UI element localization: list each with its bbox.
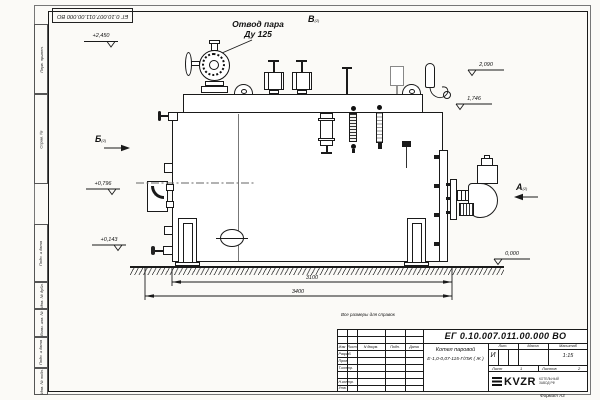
sheets-label: Листов xyxy=(542,366,557,371)
safety-valve-2 xyxy=(292,72,312,90)
steam-valve-ring xyxy=(199,50,230,81)
col-izm: Изм xyxy=(337,345,347,349)
frame-cell-label: Подп. и дата xyxy=(39,240,44,265)
frame-cell-label: Взам. инв. № xyxy=(39,311,44,336)
frame-cell-label: Справ. № xyxy=(39,130,44,148)
view-sheet-ref: (2) xyxy=(315,18,320,23)
tb-h xyxy=(488,349,588,350)
row-nkontr: Н.контр. xyxy=(339,380,354,384)
elbow-flange-top xyxy=(166,184,174,191)
row-razrab: Разраб. xyxy=(339,352,352,356)
tb-v xyxy=(488,343,489,392)
doc-number: ЕГ 0.10.007.011.00.000 ВО xyxy=(423,331,588,341)
frame-cell-label: Инв. № дубл. xyxy=(39,283,44,308)
frame-cell-podp-data-2: Подп. и дата xyxy=(34,337,48,368)
sv-inner-wall xyxy=(296,73,310,89)
mass-header: Масса xyxy=(518,344,548,348)
row-utv: Утв. xyxy=(339,386,347,390)
lug-hole xyxy=(409,89,415,94)
lit-header: Лит. xyxy=(488,344,518,348)
logo-bars-icon xyxy=(492,377,502,387)
sv2-stem xyxy=(301,61,303,72)
frame-cell-perv-primen: Перв. примен. xyxy=(34,24,48,94)
burner-motor-cap xyxy=(481,158,493,166)
steam-drum xyxy=(183,94,423,113)
feed-column-flange-bot xyxy=(318,138,335,141)
lug-hole xyxy=(241,89,247,94)
sample-pipe-end xyxy=(443,91,451,99)
reference-note: Все размеры для справок xyxy=(341,312,395,317)
manhole-axis xyxy=(216,238,248,239)
burner-motor-top xyxy=(484,155,490,159)
elbow-flange-bottom xyxy=(166,201,174,208)
steam-outlet-label-line1: Отвод пара xyxy=(222,19,294,29)
logo-tagline-2: ЗАВОД РФ xyxy=(539,382,559,386)
elevation-value: 0,000 xyxy=(494,251,530,257)
company-logo: KVZR КОТЕЛЬНЫЙ ЗАВОД РФ xyxy=(492,373,586,390)
format-label: Формат А3 xyxy=(540,393,565,398)
tb-h xyxy=(337,371,423,372)
elevation-value: +0,143 xyxy=(92,237,126,243)
top-stamp-doc-number: ЕГ 0.10.007.011.00.000 ВО xyxy=(57,13,128,19)
wall-stub-lower xyxy=(164,226,173,235)
steam-outlet-label-line2: Ду 125 xyxy=(222,29,294,39)
vent-cap xyxy=(342,67,352,69)
gauge2-knob-top xyxy=(377,105,382,110)
valve-stem xyxy=(191,61,200,66)
tb-v xyxy=(538,365,539,371)
scale-header: Масштаб xyxy=(548,344,588,348)
tb-h xyxy=(337,357,423,358)
lit-value: И xyxy=(488,352,498,359)
leg-channel xyxy=(183,223,193,262)
elevation-value: 2,090 xyxy=(468,62,504,68)
view-sheet-ref: (2) xyxy=(523,186,528,191)
sheets-value: 2 xyxy=(578,366,580,371)
row-prov: Пров. xyxy=(339,359,348,363)
view-v-label: В(2) xyxy=(308,14,319,24)
sv2-neck xyxy=(297,90,307,95)
tb-v xyxy=(498,349,499,365)
tb-h xyxy=(337,336,423,337)
wall-stub-upper xyxy=(164,163,173,173)
sv2-crossbar xyxy=(296,60,307,62)
leg-base-left xyxy=(175,262,200,266)
frame-cell-label: Перв. примен. xyxy=(39,46,44,73)
valve-center xyxy=(209,60,219,70)
product-designation: Е-1,0-0,07-115-Г/ЛЖ ( Ж ) xyxy=(423,357,488,362)
drain-valve-body xyxy=(163,246,173,255)
leg-channel xyxy=(412,223,422,262)
drain-valve-wheel xyxy=(151,246,155,255)
burner-stud xyxy=(446,183,451,186)
boiler-body xyxy=(172,112,443,262)
sv1-neck xyxy=(269,90,279,95)
safety-valve-1 xyxy=(264,72,284,90)
elevation-value: +2,450 xyxy=(84,33,118,39)
instrument-outline xyxy=(390,66,404,86)
frame-cell-label: Инв. № подл. xyxy=(39,369,44,394)
tb-v xyxy=(357,329,358,392)
feed-column-flange-top xyxy=(318,118,335,121)
gauge2-foot xyxy=(378,143,382,149)
drain-valve-stem xyxy=(155,250,163,252)
tb-h xyxy=(488,371,588,372)
tb-v xyxy=(385,329,386,392)
burner-stud xyxy=(446,211,451,214)
burner-fin-box xyxy=(459,203,474,216)
gauge-elbow-box xyxy=(147,181,168,212)
flange-stud xyxy=(434,242,440,246)
steam-nozzle-disc xyxy=(205,81,224,86)
vent-stem xyxy=(346,69,348,94)
frame-cell-sprav-no: Справ. № xyxy=(34,94,48,184)
support-leg-left xyxy=(178,218,197,265)
feedwater-valve-body xyxy=(168,112,178,121)
col-ndoc: N докум. xyxy=(357,345,385,349)
flange-stud xyxy=(434,184,440,188)
product-name: Котел паровой xyxy=(423,347,488,353)
valve-bonnet xyxy=(211,43,218,51)
row-tkontr: Т.контр. xyxy=(339,366,354,370)
dimension-overall: 3400 xyxy=(268,289,328,295)
level-gauge-2 xyxy=(376,112,383,143)
burner-motor xyxy=(477,165,498,184)
flange-stud xyxy=(434,213,440,217)
tb-v xyxy=(405,329,406,392)
steam-nozzle-flange xyxy=(201,86,228,93)
tb-h xyxy=(337,385,423,386)
col-podp: Подп. xyxy=(385,345,405,349)
dimension-inner: 3100 xyxy=(282,275,342,281)
view-a-label: А(2) xyxy=(516,182,527,192)
connector-flange-line xyxy=(465,191,466,200)
sv1-stem xyxy=(273,61,275,72)
frame-cell-inv-podl: Инв. № подл. xyxy=(34,368,48,395)
logo-tagline: КОТЕЛЬНЫЙ ЗАВОД РФ xyxy=(539,378,559,386)
burner-mount-flange xyxy=(450,179,457,220)
sheet-label: Лист xyxy=(492,366,502,371)
elevation-value: 1,746 xyxy=(456,96,492,102)
logo-text: KVZR xyxy=(504,376,536,388)
gauge1-foot xyxy=(352,149,355,153)
sv1-crossbar xyxy=(268,60,279,62)
view-b-label: Б(2) xyxy=(95,134,106,144)
level-gauge-1 xyxy=(349,113,357,142)
support-leg-right xyxy=(407,218,426,265)
valve-cap xyxy=(209,40,220,44)
view-sheet-ref: (2) xyxy=(101,138,106,143)
leg-base-right xyxy=(404,262,429,266)
top-stamp: ЕГ 0.10.007.011.00.000 ВО xyxy=(52,8,133,23)
rear-flange xyxy=(439,150,448,262)
rear-nozzle-stub xyxy=(402,141,411,147)
feedwater-stem xyxy=(160,115,168,117)
frame-cell-label: Подп. и дата xyxy=(39,340,44,365)
sv-inner-wall xyxy=(268,73,282,89)
gauge1-knob-top xyxy=(351,106,356,111)
water-column-cylinder xyxy=(425,63,435,88)
frame-cell-vzam-inv: Взам. инв. № xyxy=(34,309,48,337)
feed-valve-bar xyxy=(321,152,332,154)
col-list: Лист xyxy=(347,345,357,349)
tb-v xyxy=(508,349,509,365)
drawing-sheet: Перв. примен. Справ. № Подп. и дата Инв.… xyxy=(0,0,600,400)
elbow-arc xyxy=(151,186,164,199)
connector-flange-line xyxy=(461,191,462,200)
frame-cell-inv-dubl: Инв. № дубл. xyxy=(34,282,48,309)
frame-cell-podp-data-1: Подп. и дата xyxy=(34,224,48,282)
flange-stud xyxy=(434,155,440,159)
sheet-value: 1 xyxy=(520,366,522,371)
col-data: Дата xyxy=(405,345,423,349)
scale-value: 1:15 xyxy=(548,353,588,359)
burner-stud xyxy=(446,197,451,200)
elevation-value: +0,796 xyxy=(86,181,120,187)
